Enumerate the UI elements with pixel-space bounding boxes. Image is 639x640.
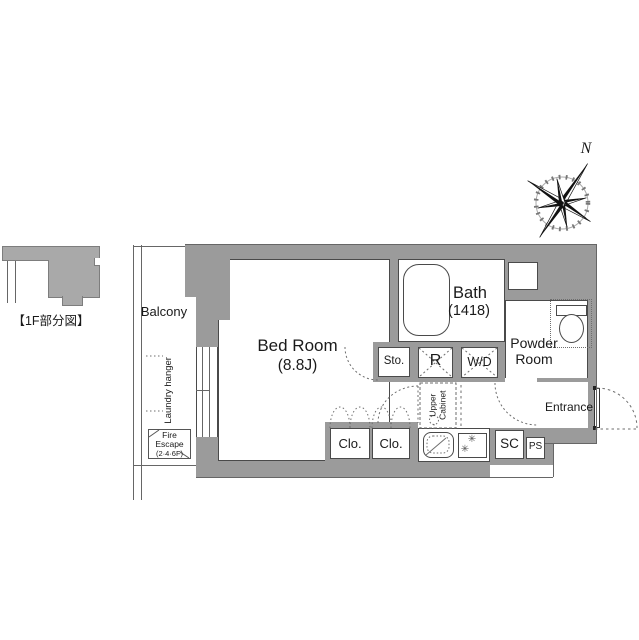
washer-dryer-label: W/D — [461, 355, 498, 369]
bath-size-label: (1418) — [438, 303, 500, 319]
powder-room-label: Powder Room — [505, 336, 563, 367]
balcony-bottom-line — [133, 465, 196, 466]
wall-pillar-step — [196, 297, 230, 320]
entrance-label: Entrance — [544, 401, 594, 414]
balcony-top-line — [133, 246, 185, 247]
bedroom-size-label: (8.8J) — [240, 357, 355, 374]
mini-figure-tab — [62, 296, 83, 306]
shoe-closet-label: SC — [495, 436, 524, 451]
outline-right — [596, 245, 597, 443]
outline-step — [553, 443, 554, 477]
balcony-label: Balcony — [136, 305, 192, 320]
bedroom-label: Bed Room — [240, 336, 355, 355]
mini-figure-rail-line — [7, 261, 8, 303]
pipe-space-label: PS — [526, 441, 545, 452]
balcony-rail-line — [141, 245, 142, 500]
mini-figure-rail-line — [15, 261, 16, 303]
stove-burner-icon: ✳ — [459, 444, 471, 455]
window-sash-tick — [196, 390, 210, 391]
kitchen-sink — [423, 432, 454, 458]
outline-top — [185, 244, 597, 245]
balcony-window — [196, 347, 218, 437]
fire-escape-label: Fire Escape (2·4·6F) — [149, 431, 190, 458]
wall-pillar — [185, 245, 230, 297]
mini-figure-block — [48, 260, 100, 298]
mini-figure-notch — [94, 258, 100, 266]
outline-bottom — [196, 477, 553, 478]
closet-1-label: Clo. — [330, 437, 370, 452]
bedroom-doorway-floor — [390, 382, 418, 423]
bath-label: Bath — [443, 284, 497, 302]
compass-rose — [505, 141, 616, 256]
closet-2-label: Clo. — [372, 437, 410, 452]
mini-figure-label: 【1F部分図】 — [0, 314, 102, 328]
mini-figure-top-bar — [2, 246, 100, 261]
entrance-door-leaf — [594, 388, 600, 428]
washer-box — [508, 262, 538, 290]
powder-doorway-floor — [505, 378, 537, 384]
compass-north-label: N — [576, 140, 596, 158]
upper-cabinet-label: Upper Cabinet — [420, 383, 456, 428]
refrigerator-label: R — [423, 352, 448, 370]
entrance-door-arc — [597, 388, 637, 428]
balcony-rail-line — [133, 245, 134, 500]
window-pane-line — [202, 347, 203, 437]
laundry-hanger-label: Laundry hanger — [160, 350, 178, 430]
floor-plan: 【1F部分図】 — [0, 0, 639, 640]
window-pane-line — [209, 347, 210, 437]
below-sc-cutout — [490, 465, 553, 477]
storage-label: Sto. — [378, 355, 410, 368]
